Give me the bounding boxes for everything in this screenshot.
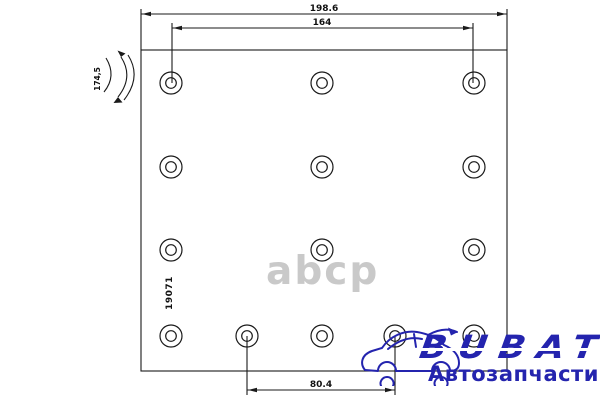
rivet-hole [463, 239, 485, 261]
rivet-hole [311, 325, 333, 347]
rivet-hole [160, 239, 182, 261]
rivet-hole [317, 78, 328, 89]
rivet-hole [463, 156, 485, 178]
arc-section-symbol: 174,5 [93, 51, 134, 104]
dimension-bottom-hole-span: 80.4 [247, 336, 395, 395]
rivet-holes [160, 72, 485, 347]
rivet-hole [166, 245, 177, 256]
rivet-hole [311, 156, 333, 178]
rivet-hole [463, 325, 485, 347]
rivet-hole [311, 72, 333, 94]
rivet-hole [469, 245, 480, 256]
rivet-hole [469, 78, 480, 89]
dim-bottom-span-label: 80.4 [310, 380, 332, 390]
part-marking: 19071 [165, 276, 175, 310]
rivet-hole [317, 162, 328, 173]
dim-top-span-label: 164 [313, 18, 332, 28]
rivet-hole [160, 156, 182, 178]
rivet-hole [463, 72, 485, 94]
rivet-hole [166, 331, 177, 342]
dim-overall-width-label: 198.6 [310, 4, 338, 14]
rivet-hole [166, 78, 177, 89]
technical-drawing: 198.6 164 80.4 174,5 [0, 0, 600, 400]
rivet-hole [160, 325, 182, 347]
rivet-hole [469, 162, 480, 173]
abcp-watermark: abcp [266, 252, 379, 291]
rivet-hole [160, 72, 182, 94]
lining-outline [141, 50, 507, 371]
rivet-hole [469, 331, 480, 342]
rivet-hole [317, 331, 328, 342]
rivet-hole [166, 162, 177, 173]
product-drawing-image: 198.6 164 80.4 174,5 [0, 0, 600, 400]
radius-label: 174,5 [93, 67, 102, 91]
